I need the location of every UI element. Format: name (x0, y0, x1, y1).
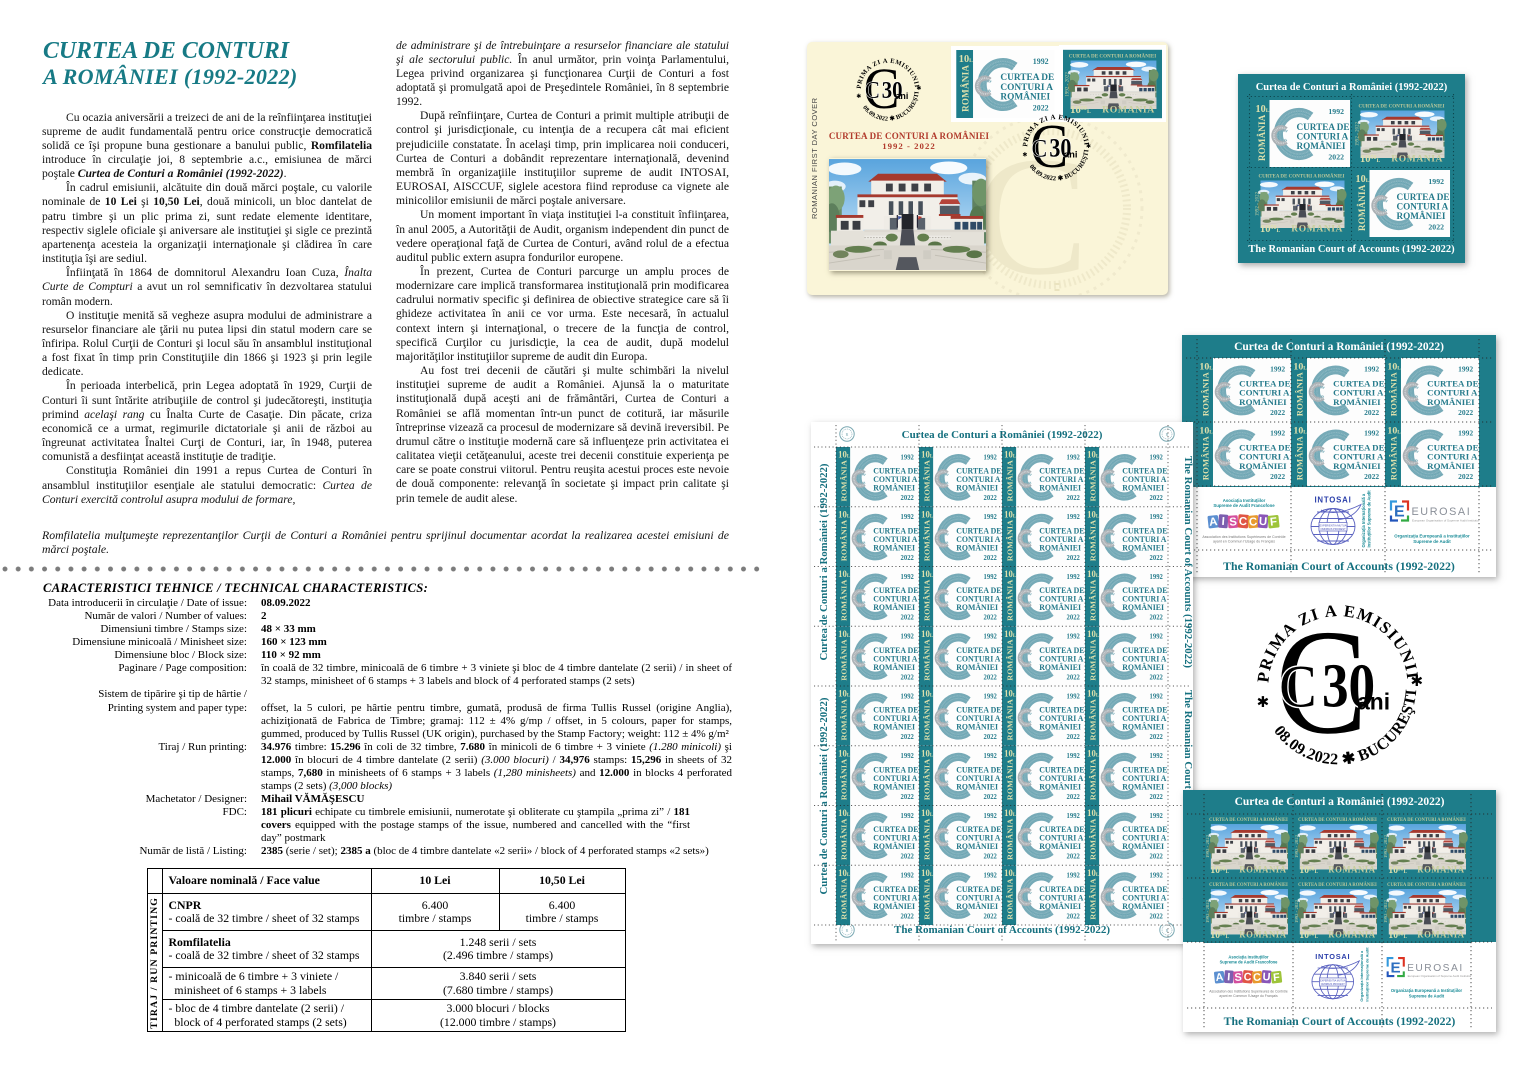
svg-text:Curtea de Conturi a României (: Curtea de Conturi a României (1992-2022) (818, 697, 830, 894)
svg-text:Curtea de Conturi a României (: Curtea de Conturi a României (1992-2022) (818, 463, 830, 660)
svg-text:The Romanian Court of Accounts: The Romanian Court of Accounts (1992-202… (894, 924, 1110, 936)
svg-text:Curtea de Conturi a României (: Curtea de Conturi a României (1992-2022) (902, 429, 1103, 441)
svg-text:The Romanian Court of Accounts: The Romanian Court of Accounts (1992-202… (1182, 456, 1193, 668)
